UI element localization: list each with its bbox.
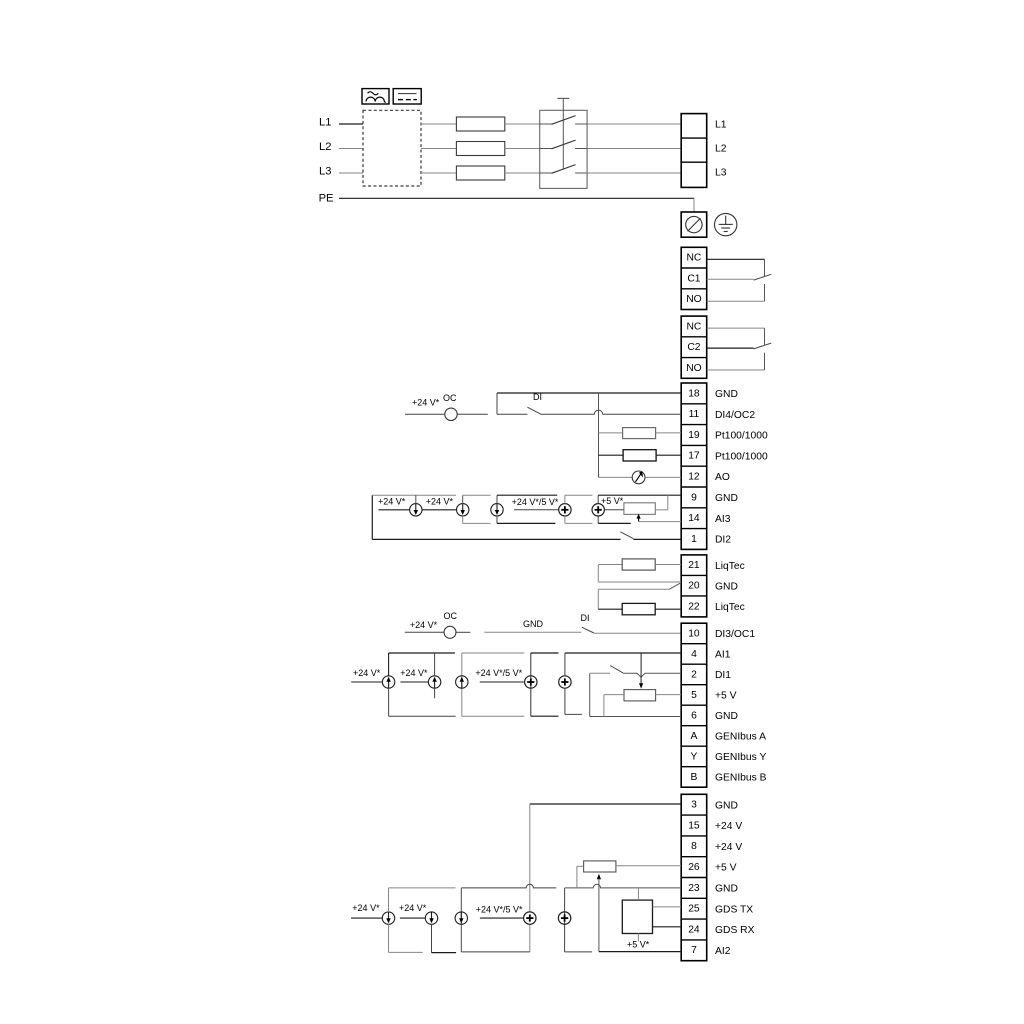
svg-text:+5 V: +5 V (715, 691, 737, 702)
svg-text:DI4/OC2: DI4/OC2 (715, 410, 755, 421)
svg-text:25: 25 (688, 904, 700, 915)
svg-text:OC: OC (444, 611, 458, 621)
svg-text:LiqTec: LiqTec (715, 561, 745, 572)
svg-text:5: 5 (691, 690, 697, 701)
svg-text:8: 8 (691, 841, 697, 852)
svg-text:10: 10 (688, 628, 700, 639)
svg-text:GND: GND (715, 800, 738, 811)
svg-text:OC: OC (443, 393, 457, 403)
svg-text:GND: GND (523, 619, 544, 629)
svg-text:DI3/OC1: DI3/OC1 (715, 629, 755, 640)
svg-text:3: 3 (691, 800, 697, 811)
svg-text:4: 4 (691, 649, 697, 660)
svg-text:+24 V: +24 V (715, 842, 742, 853)
svg-text:DI: DI (533, 392, 542, 402)
svg-text:2: 2 (691, 669, 697, 680)
svg-text:26: 26 (688, 862, 700, 873)
svg-text:+24 V*: +24 V* (400, 668, 428, 678)
svg-text:NC: NC (687, 253, 702, 264)
svg-text:+24 V*: +24 V* (399, 903, 427, 913)
svg-text:6: 6 (691, 710, 697, 721)
svg-text:GND: GND (715, 884, 738, 895)
svg-text:9: 9 (691, 492, 697, 503)
svg-text:+24 V*: +24 V* (378, 497, 406, 507)
svg-text:DI: DI (581, 613, 590, 623)
svg-text:AI2: AI2 (715, 946, 731, 957)
svg-text:GDS RX: GDS RX (715, 925, 755, 936)
svg-text:L1: L1 (319, 117, 331, 129)
svg-text:L3: L3 (715, 168, 727, 179)
svg-text:Y: Y (691, 751, 698, 762)
svg-text:18: 18 (688, 388, 700, 399)
svg-text:14: 14 (688, 513, 700, 524)
svg-text:21: 21 (688, 560, 700, 571)
svg-text:15: 15 (688, 820, 700, 831)
svg-text:+5 V*: +5 V* (601, 496, 624, 506)
svg-text:22: 22 (688, 601, 700, 612)
svg-text:23: 23 (688, 883, 700, 894)
svg-text:+5 V*: +5 V* (627, 940, 650, 950)
svg-text:GND: GND (715, 389, 738, 400)
svg-text:12: 12 (688, 472, 700, 483)
svg-text:+24 V: +24 V (715, 821, 742, 832)
svg-text:+24 V*: +24 V* (353, 668, 381, 678)
svg-text:C1: C1 (687, 273, 700, 284)
svg-text:GDS TX: GDS TX (715, 904, 753, 915)
svg-text:GENIbus B: GENIbus B (715, 773, 767, 784)
svg-text:L3: L3 (319, 166, 331, 178)
svg-text:GND: GND (715, 582, 738, 593)
svg-text:17: 17 (688, 451, 700, 462)
svg-text:20: 20 (688, 581, 700, 592)
svg-text:+24 V*: +24 V* (412, 397, 440, 407)
svg-text:LiqTec: LiqTec (715, 602, 745, 613)
svg-text:AI3: AI3 (715, 514, 731, 525)
svg-text:GENIbus A: GENIbus A (715, 732, 766, 743)
svg-text:GENIbus Y: GENIbus Y (715, 752, 766, 763)
svg-text:B: B (691, 772, 698, 783)
svg-text:+24 V*/5 V*: +24 V*/5 V* (512, 497, 559, 507)
svg-text:NC: NC (687, 321, 702, 332)
svg-text:C2: C2 (687, 342, 700, 353)
svg-text:7: 7 (691, 945, 697, 956)
svg-text:DI2: DI2 (715, 535, 731, 546)
svg-text:Pt100/1000: Pt100/1000 (715, 451, 768, 462)
svg-text:A: A (691, 731, 698, 742)
svg-text:+24 V*: +24 V* (426, 497, 454, 507)
svg-text:AI1: AI1 (715, 650, 731, 661)
svg-text:L2: L2 (715, 144, 727, 155)
svg-text:AO: AO (715, 472, 730, 483)
svg-text:L1: L1 (715, 119, 727, 130)
svg-text:+24 V*: +24 V* (410, 620, 438, 630)
svg-text:NO: NO (686, 363, 701, 374)
svg-text:NO: NO (686, 294, 701, 305)
svg-text:24: 24 (688, 924, 700, 935)
svg-text:DI1: DI1 (715, 670, 731, 681)
svg-text:L2: L2 (319, 141, 331, 153)
svg-text:19: 19 (688, 430, 700, 441)
svg-text:GND: GND (715, 493, 738, 504)
svg-text:+24 V*/5 V*: +24 V*/5 V* (476, 904, 523, 914)
svg-text:+5 V: +5 V (715, 863, 737, 874)
svg-text:PE: PE (319, 193, 334, 205)
svg-text:1: 1 (691, 534, 697, 545)
svg-text:GND: GND (715, 711, 738, 722)
svg-text:+24 V*/5 V*: +24 V*/5 V* (475, 668, 522, 678)
svg-text:11: 11 (689, 409, 700, 420)
svg-text:+24 V*: +24 V* (352, 903, 380, 913)
svg-text:Pt100/1000: Pt100/1000 (715, 431, 768, 442)
